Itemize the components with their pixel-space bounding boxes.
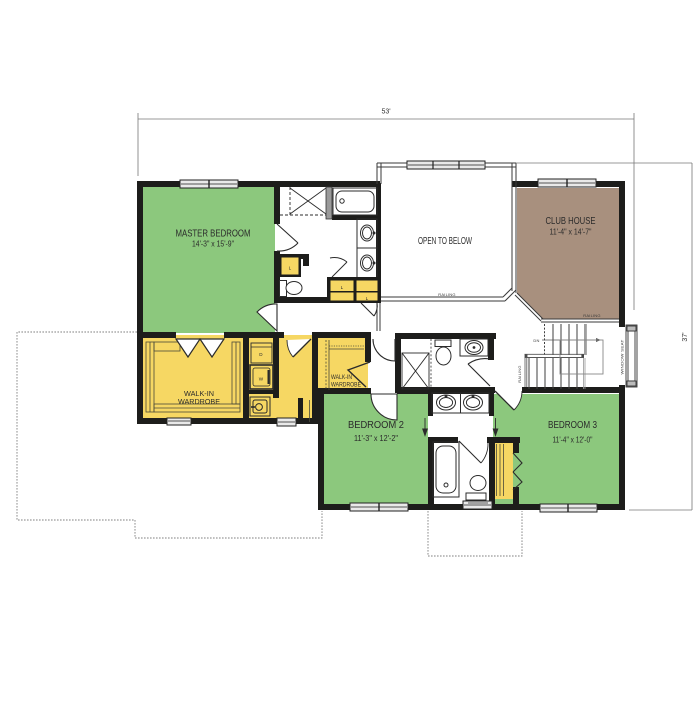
svg-text:OPEN TO BELOW: OPEN TO BELOW (418, 236, 472, 247)
svg-text:WARDROBE: WARDROBE (331, 382, 362, 389)
svg-text:DN: DN (533, 338, 539, 343)
svg-text:WINDOW SEAT: WINDOW SEAT (620, 339, 625, 374)
svg-text:53': 53' (381, 109, 390, 116)
svg-text:14'-3" x 15'-9": 14'-3" x 15'-9" (192, 239, 234, 249)
svg-text:WARDROBE: WARDROBE (178, 399, 220, 406)
svg-text:WALK-IN: WALK-IN (184, 391, 214, 398)
svg-text:W: W (259, 377, 264, 382)
svg-text:11'-3" x 12'-2": 11'-3" x 12'-2" (354, 433, 398, 443)
svg-text:D: D (259, 352, 263, 357)
svg-text:11'-4" x 14'-7": 11'-4" x 14'-7" (550, 227, 592, 237)
svg-text:RAILING: RAILING (583, 313, 600, 318)
svg-text:L: L (366, 296, 369, 301)
svg-text:RAILING: RAILING (438, 292, 455, 297)
svg-text:BEDROOM 2: BEDROOM 2 (348, 420, 404, 431)
svg-text:11'-4" x 12'-0": 11'-4" x 12'-0" (553, 435, 593, 445)
svg-text:RAILING: RAILING (517, 365, 522, 382)
svg-text:L: L (289, 266, 292, 271)
svg-text:BEDROOM 3: BEDROOM 3 (548, 420, 597, 431)
svg-text:L: L (341, 285, 344, 290)
svg-text:CLUB HOUSE: CLUB HOUSE (546, 216, 596, 227)
svg-text:37': 37' (682, 332, 689, 341)
svg-text:WALK-IN: WALK-IN (331, 374, 352, 381)
